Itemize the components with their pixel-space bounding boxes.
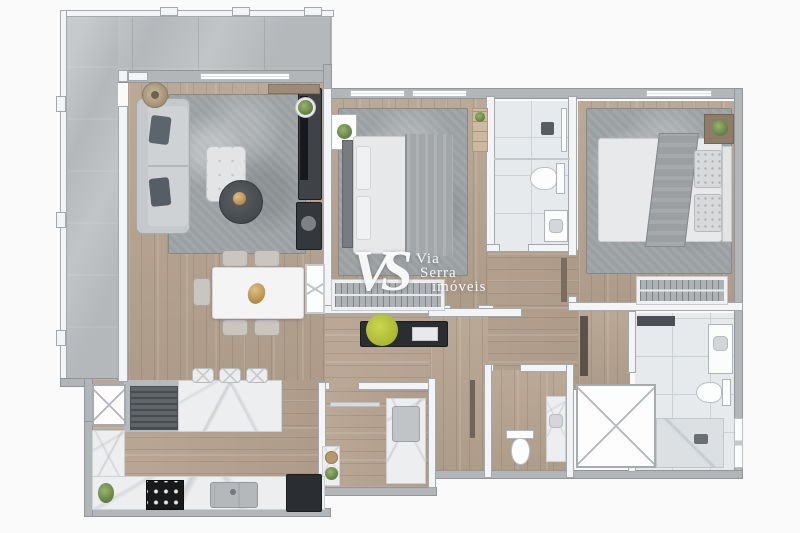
bathroom2-left-wall <box>628 311 636 373</box>
parapet-post <box>232 7 250 16</box>
living-window <box>200 73 290 80</box>
sofa-pillow <box>149 177 172 207</box>
bedroom1-plant <box>337 124 352 139</box>
bathroom2-shower-valve <box>694 434 708 444</box>
top-notch-wall <box>323 64 332 90</box>
balcony-floor-left <box>66 16 118 380</box>
bathroom2-sink-basin <box>713 336 728 351</box>
bar-stool <box>192 368 214 383</box>
laundry-right-wall <box>428 378 436 488</box>
bedroom1-window2 <box>412 90 467 97</box>
bedroom2-headboard <box>722 146 732 242</box>
bedroom1-pillow <box>356 196 371 240</box>
bathroom2-shower <box>656 418 724 468</box>
laundry-shelf <box>330 402 380 407</box>
kitchen-sink <box>210 482 258 508</box>
bedroom1-headboard <box>342 140 353 248</box>
dining-chair <box>254 250 280 267</box>
hall-wardrobe-strip <box>580 316 588 376</box>
sofa-pillow <box>148 115 171 145</box>
floor-plan-render: VS Via Serra imóveis <box>0 0 800 533</box>
bedroom2-door-leaf <box>561 258 567 302</box>
parapet-post <box>56 96 66 112</box>
bedroom2-left-wall <box>568 96 577 256</box>
bathroom2-toilet-bowl <box>696 382 722 403</box>
coffee-table-tray <box>233 192 246 205</box>
bedroom1-closet <box>332 280 444 310</box>
kitchen-plant <box>98 483 114 503</box>
bar-stool <box>219 368 241 383</box>
laundry-bottom-wall <box>318 487 437 496</box>
lavatory-right-wall <box>566 364 574 478</box>
dining-chair <box>222 319 248 336</box>
lavatory-sink-counter <box>546 396 566 462</box>
bar-stool <box>246 368 268 383</box>
balcony-parapet-left <box>60 10 67 384</box>
bathroom2-window <box>734 418 743 468</box>
bedroom2-pillow <box>694 150 722 188</box>
parapet-post <box>56 212 66 228</box>
laundry-sink <box>392 406 420 442</box>
lavatory-sink-basin <box>549 414 563 428</box>
lavatory-toilet-bowl <box>511 438 530 465</box>
laundry-stool <box>325 451 338 464</box>
kitchen-grill <box>130 386 178 430</box>
laundry-top-wall2 <box>358 382 436 390</box>
bathroom2-toilet-tank <box>722 379 731 406</box>
bedroom1-blanket <box>405 134 453 256</box>
refrigerator <box>286 474 322 512</box>
kitchen-faucet <box>230 489 236 495</box>
kitchen-island <box>178 380 282 432</box>
laundry-plant <box>325 467 338 480</box>
balcony-parapet-top <box>60 10 334 17</box>
bathroom1-bottom-wall <box>486 244 500 252</box>
bedroom2-closet <box>637 277 727 304</box>
bedroom1-window <box>350 90 405 97</box>
dining-chair <box>222 250 248 267</box>
balcony-living-wall-upper <box>118 70 128 82</box>
hall-door-panel <box>305 264 325 314</box>
corridor-door-leaf <box>470 380 475 438</box>
top-cabinet <box>268 84 320 94</box>
dining-chair <box>254 319 280 336</box>
bathroom1-sink-basin <box>549 219 563 233</box>
bedroom2-pillow <box>694 194 722 232</box>
shelf-plant <box>475 112 485 122</box>
bedroom1-pillow <box>356 146 371 190</box>
parapet-post <box>304 7 322 16</box>
bathroom1-glass-divider <box>494 158 570 160</box>
media-stool <box>301 216 316 231</box>
lamp-top <box>151 91 159 99</box>
hall-console-plant <box>366 314 398 346</box>
living-plant <box>298 100 313 115</box>
shaft-left <box>92 384 126 426</box>
bottom-right-exterior-wall <box>428 470 743 479</box>
hall-console-tray <box>412 327 438 341</box>
cooktop <box>146 480 184 510</box>
bedroom2-window <box>646 90 712 97</box>
living-corner-frame <box>128 72 148 81</box>
parapet-post <box>56 330 66 346</box>
balcony-living-wall <box>118 106 128 382</box>
bathroom1-toilet-bowl <box>530 167 557 190</box>
bathroom1-shower-head <box>541 122 554 135</box>
bedroom2-plant <box>712 120 728 136</box>
bathroom1-toilet-tank <box>556 163 565 194</box>
parapet-post <box>160 7 178 16</box>
bathroom1-towel-rail <box>561 108 567 152</box>
dining-chair <box>193 278 211 306</box>
bathroom2-shelf <box>637 316 675 326</box>
lavatory-left-wall <box>484 364 492 478</box>
elevator-shaft <box>576 384 656 468</box>
